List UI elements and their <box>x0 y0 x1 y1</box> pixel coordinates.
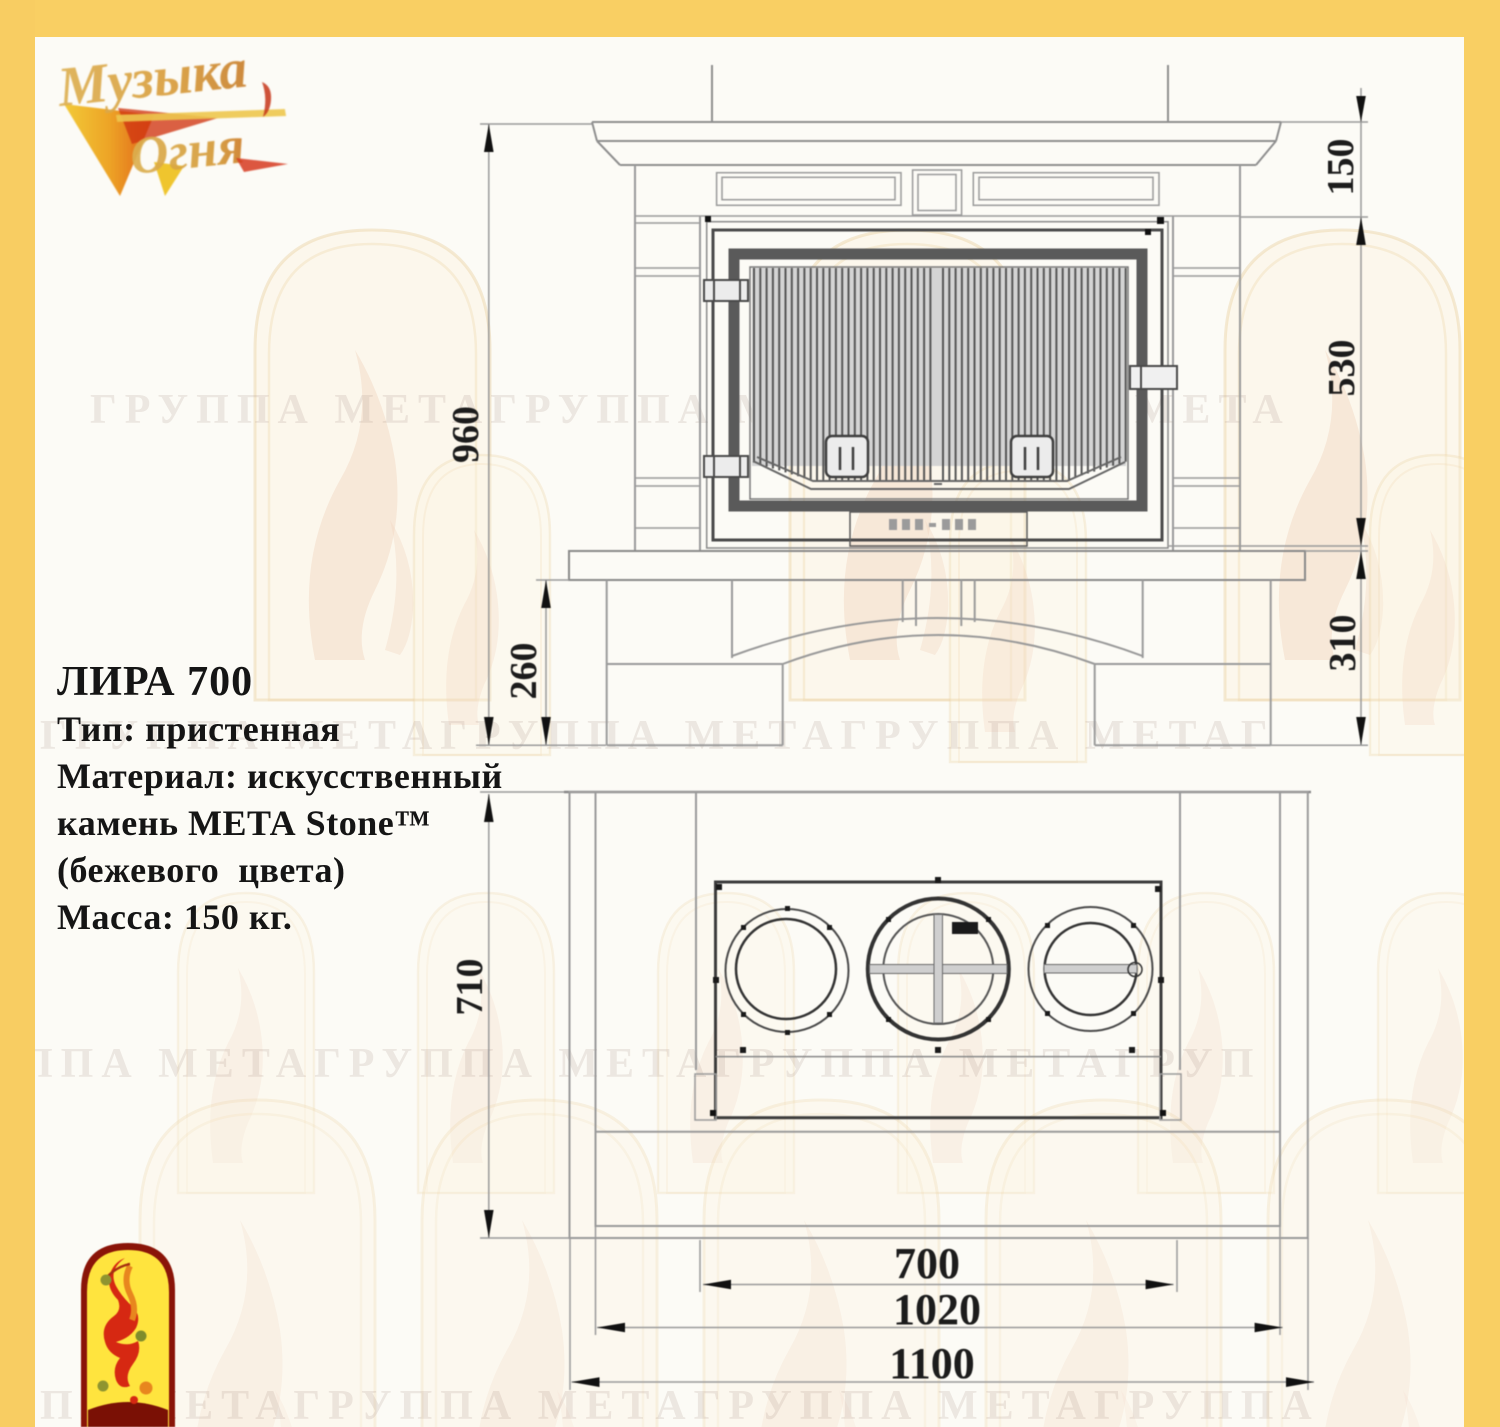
svg-text:260: 260 <box>503 643 545 700</box>
svg-text:960: 960 <box>445 406 487 463</box>
svg-text:1100: 1100 <box>889 1339 975 1388</box>
svg-text:700: 700 <box>894 1239 960 1288</box>
svg-text:Музыка: Музыка <box>54 40 250 119</box>
svg-text:310: 310 <box>1322 615 1364 672</box>
svg-text:1020: 1020 <box>893 1285 981 1334</box>
svg-text:Огня: Огня <box>127 116 247 186</box>
svg-text:530: 530 <box>1321 340 1363 397</box>
svg-text:710: 710 <box>449 959 491 1016</box>
svg-text:150: 150 <box>1320 139 1362 196</box>
